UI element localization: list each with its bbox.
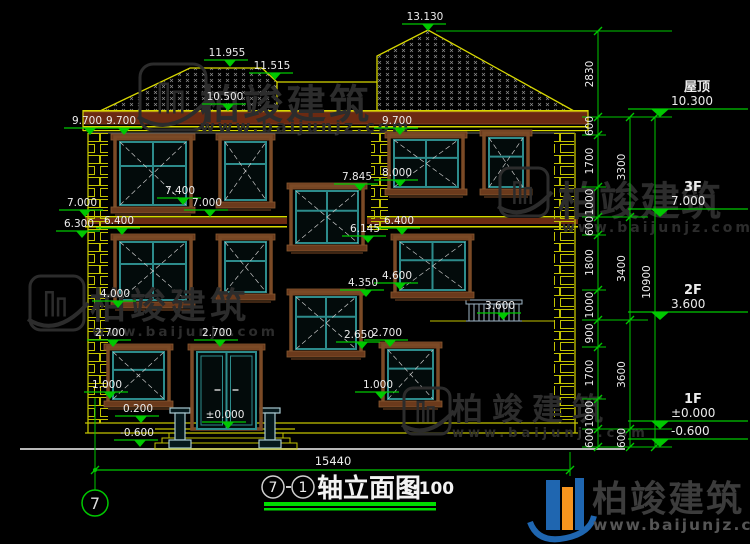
marker-value: 3.600 — [485, 300, 515, 312]
flag-triangle-icon — [651, 109, 669, 117]
marker-value: 6.400 — [384, 215, 414, 227]
dim-chain-label: 1800 — [584, 249, 596, 276]
window — [216, 134, 275, 210]
title-axis-from: 7 — [269, 480, 278, 496]
marker-value: 4.350 — [348, 277, 378, 289]
elevation-marker: 9.700 — [64, 115, 108, 135]
marker-triangle-icon — [76, 231, 88, 238]
dim-chain-label: 1000 — [584, 292, 596, 319]
marker-value: 4.600 — [382, 270, 412, 282]
window — [287, 289, 365, 359]
flag-floor-label: 1F — [684, 392, 702, 407]
marker-value: 6.400 — [104, 215, 134, 227]
marker-triangle-icon — [134, 440, 146, 447]
dim-chain-label: 600 — [584, 116, 596, 136]
flag-value: 7.000 — [671, 194, 705, 208]
title-underline-2 — [264, 508, 436, 511]
marker-value: 11.515 — [254, 60, 291, 72]
marker-triangle-icon — [135, 416, 147, 423]
window — [391, 234, 474, 300]
marker-value: 2.700 — [202, 327, 232, 339]
overall-width-dimension: 15440 — [91, 452, 574, 476]
title-underline-1 — [264, 502, 436, 506]
sill — [216, 202, 275, 208]
marker-value: 2.700 — [95, 327, 125, 339]
marker-value: 13.130 — [407, 11, 444, 23]
logo-building-blue2 — [575, 478, 584, 530]
dim-chain-label: 600 — [584, 428, 596, 448]
marker-value: 0.200 — [123, 403, 153, 415]
marker-triangle-icon — [356, 342, 368, 349]
marker-value: 7.000 — [192, 197, 222, 209]
sill — [391, 292, 474, 298]
watermark-url-text: www.baijunjz.com — [200, 117, 411, 136]
marker-value: 6.145 — [350, 223, 380, 235]
marker-value: 2.700 — [372, 327, 402, 339]
marker-value: 9.700 — [106, 115, 136, 127]
flag-triangle-icon — [651, 421, 669, 429]
right-corner-quoins — [554, 133, 574, 423]
sill — [287, 245, 367, 251]
marker-value: -0.600 — [120, 427, 154, 439]
dim-chain-label: 10900 — [641, 265, 653, 298]
elevation-marker: 13.130 — [402, 11, 446, 31]
marker-triangle-icon — [422, 24, 434, 31]
marker-value: 2.650 — [344, 329, 374, 341]
marker-value: 4.000 — [100, 288, 130, 300]
marker-triangle-icon — [204, 210, 216, 217]
floor-level-flag: 10.300屋顶 — [628, 80, 748, 117]
dim-chain-label: 1000 — [584, 189, 596, 216]
marker-value: 7.845 — [342, 171, 372, 183]
dim-chain-label: 1000 — [584, 401, 596, 428]
path — [46, 292, 64, 316]
marker-triangle-icon — [375, 392, 387, 399]
title-scale: 1:100 — [400, 479, 454, 499]
dim-chain-label: 600 — [616, 428, 628, 448]
dim-chain-label: 600 — [584, 216, 596, 236]
marker-value: 6.300 — [64, 218, 94, 230]
dim-chain-label: 3400 — [616, 255, 628, 282]
dim-chain-label: 1700 — [584, 360, 596, 387]
cad-elevation-drawing: 柏竣建筑www.baijunjz.com柏竣建筑www.baijunjz.com… — [0, 0, 750, 544]
sill — [385, 189, 467, 195]
marker-value: ±0.000 — [206, 409, 245, 421]
flag-value: 10.300 — [671, 94, 713, 108]
elevation-marker: -0.600 — [114, 427, 158, 447]
flag-triangle-icon — [651, 312, 669, 320]
marker-value: 1.000 — [92, 379, 122, 391]
marker-value: 7.000 — [67, 197, 97, 209]
window — [287, 183, 367, 253]
brand-url-text: www.baijunjz.com — [593, 516, 750, 534]
flag-floor-label: 屋顶 — [684, 80, 710, 95]
axis-bubble-label: 7 — [90, 494, 100, 513]
brand-name-text: 柏竣建筑 — [592, 479, 744, 520]
dim-chain-label: 3300 — [616, 154, 628, 181]
title-axis-to: 1 — [299, 480, 308, 496]
flag-value: ±0.000 — [671, 406, 715, 420]
flag-triangle-icon — [651, 439, 669, 447]
left-baluster — [169, 408, 191, 448]
main-hip-roof — [377, 30, 574, 111]
brand-logo — [530, 478, 594, 539]
overall-width-label: 15440 — [315, 454, 352, 468]
sill — [287, 351, 365, 357]
window — [379, 342, 442, 409]
sill — [111, 207, 195, 213]
drawing-title: 7 1 轴立面图 1:100 — [262, 473, 454, 511]
marker-value: 11.955 — [209, 47, 246, 59]
window — [104, 344, 173, 409]
marker-value: 1.000 — [363, 379, 393, 391]
marker-value: 9.700 — [382, 115, 412, 127]
flag-floor-label: 3F — [684, 180, 702, 195]
flag-value: 3.600 — [671, 297, 705, 311]
logo-building-blue — [546, 480, 560, 530]
flag-floor-label: 2F — [684, 283, 702, 298]
flag-value: -0.600 — [671, 424, 710, 438]
marker-value: 8.000 — [382, 167, 412, 179]
window — [385, 132, 467, 197]
windows-layer — [104, 130, 532, 429]
marker-value: 10.500 — [207, 91, 244, 103]
dim-chain-label: 2830 — [584, 61, 596, 88]
marker-value: 7.400 — [165, 185, 195, 197]
elevation-marker: 11.955 — [204, 47, 248, 67]
dim-chain-label: 1700 — [584, 148, 596, 175]
marker-value: 9.700 — [72, 115, 102, 127]
watermark-logo-icon — [28, 276, 88, 330]
dim-chain-label: 3600 — [616, 361, 628, 388]
logo-building-orange — [562, 487, 573, 530]
marker-triangle-icon — [224, 60, 236, 67]
drawing-canvas: 柏竣建筑www.baijunjz.com柏竣建筑www.baijunjz.com… — [0, 0, 750, 544]
dim-chain-label: 900 — [584, 323, 596, 343]
